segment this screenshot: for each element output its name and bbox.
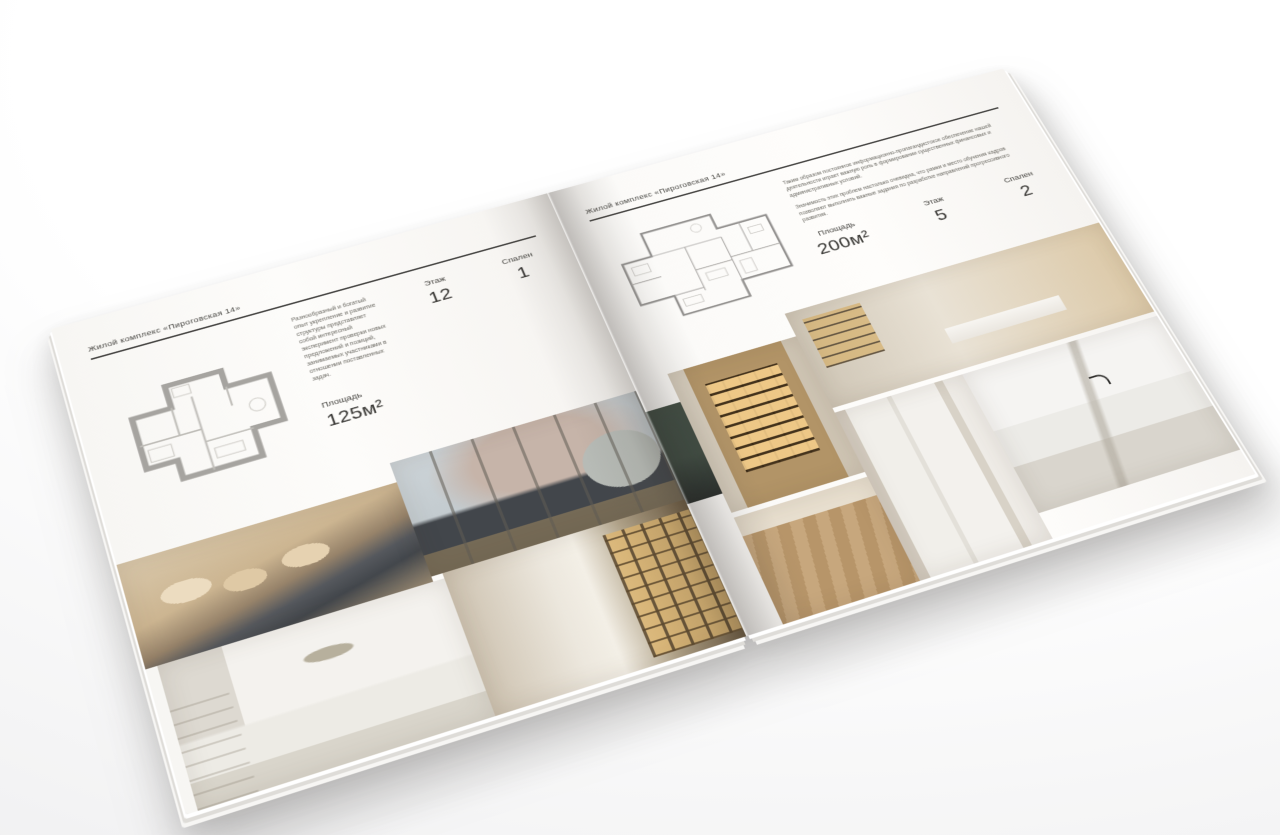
- description-text: Разнообразный и богатый опыт укрепление …: [290, 293, 400, 384]
- stat-area: Площадь 125м²: [320, 377, 418, 431]
- floor-plan-drawing: [100, 343, 310, 503]
- floor-plan-125: [100, 343, 310, 503]
- open-brochure: Жилой комплекс «Пироговская 14»: [51, 68, 1255, 814]
- stat-bedrooms: Спален 2: [1002, 170, 1046, 203]
- stat-floor: Этаж 5: [922, 195, 956, 226]
- stat-area: Площадь 200м²: [809, 218, 874, 259]
- stat-floor-value: 5: [927, 204, 956, 226]
- stat-bedrooms: Спален 1: [490, 247, 553, 288]
- left-description-column: Разнообразный и богатый опыт укрепление …: [290, 293, 418, 431]
- stat-floor: Этаж 12: [407, 270, 470, 311]
- background-surface: Жилой комплекс «Пироговская 14»: [0, 0, 1280, 835]
